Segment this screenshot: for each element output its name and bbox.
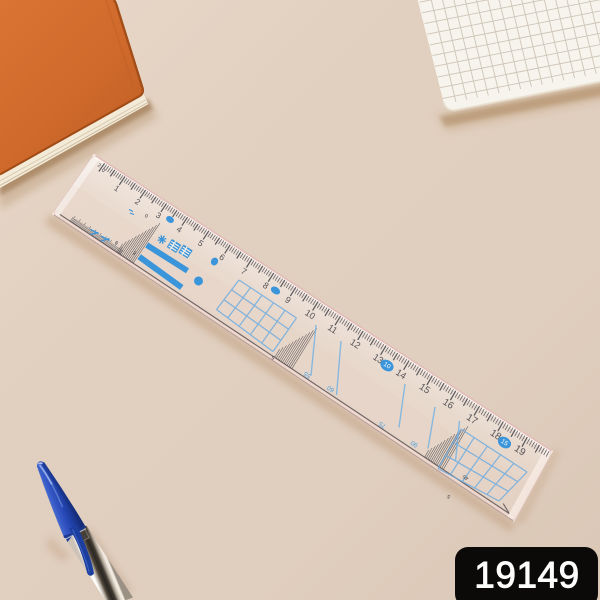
svg-text:19149: 19149: [474, 555, 579, 596]
